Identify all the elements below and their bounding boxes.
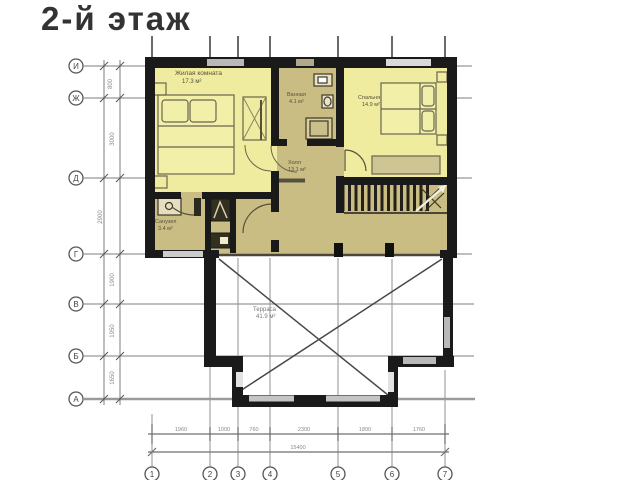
svg-text:760: 760 [249, 427, 258, 433]
svg-text:3: 3 [236, 470, 241, 479]
svg-text:И: И [73, 62, 79, 71]
svg-text:Терраса: Терраса [253, 307, 277, 313]
svg-text:Жилая комната: Жилая комната [175, 70, 222, 77]
svg-text:Спальня: Спальня [358, 95, 380, 101]
svg-text:Г: Г [74, 250, 79, 259]
svg-text:3.4 м²: 3.4 м² [158, 226, 173, 232]
svg-text:1000: 1000 [218, 427, 230, 433]
svg-text:В: В [73, 300, 78, 309]
svg-text:1650: 1650 [110, 371, 116, 385]
svg-text:2: 2 [208, 470, 213, 479]
svg-text:5: 5 [336, 470, 341, 479]
svg-text:4: 4 [268, 470, 273, 479]
svg-text:800: 800 [108, 78, 114, 89]
svg-text:4.1 м²: 4.1 м² [289, 99, 304, 105]
svg-text:1800: 1800 [359, 427, 371, 433]
svg-text:Б: Б [73, 352, 78, 361]
svg-text:Д: Д [73, 174, 79, 183]
svg-text:2-й этаж: 2-й этаж [41, 0, 192, 37]
svg-text:Санузел: Санузел [155, 219, 176, 225]
svg-text:1960: 1960 [175, 427, 187, 433]
svg-text:1950: 1950 [110, 324, 116, 338]
svg-text:3000: 3000 [110, 132, 116, 146]
svg-text:7: 7 [443, 470, 448, 479]
svg-text:15400: 15400 [290, 445, 305, 451]
svg-text:41.9 м²: 41.9 м² [256, 314, 275, 320]
svg-text:1: 1 [150, 470, 155, 479]
svg-text:А: А [73, 395, 79, 404]
svg-text:17.3 м²: 17.3 м² [182, 79, 201, 85]
svg-text:1900: 1900 [110, 273, 116, 287]
svg-text:13.1 м²: 13.1 м² [288, 167, 306, 173]
svg-text:Холл: Холл [288, 160, 301, 166]
svg-text:2900: 2900 [98, 210, 104, 224]
svg-text:Ж: Ж [72, 94, 80, 103]
svg-text:1760: 1760 [413, 427, 425, 433]
svg-text:2300: 2300 [298, 427, 310, 433]
svg-text:6: 6 [390, 470, 395, 479]
svg-text:Ванная: Ванная [287, 92, 306, 98]
svg-text:14.9 м²: 14.9 м² [362, 102, 380, 108]
